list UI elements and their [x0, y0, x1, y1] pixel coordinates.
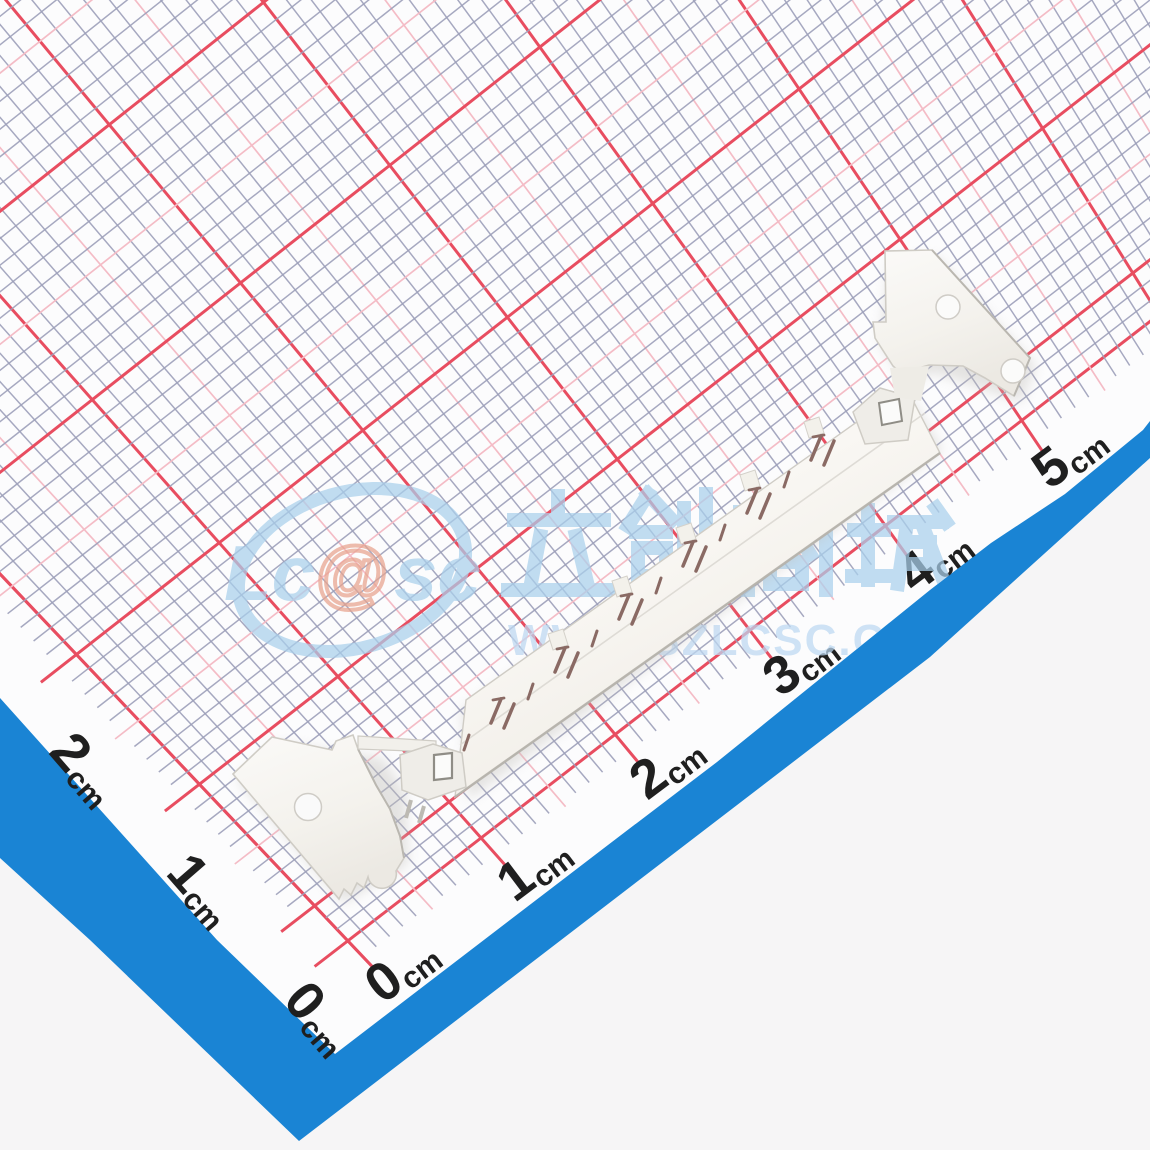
svg-text:Lc: Lc — [224, 529, 315, 617]
svg-text:@: @ — [316, 531, 388, 614]
svg-text:sc: sc — [394, 529, 481, 617]
